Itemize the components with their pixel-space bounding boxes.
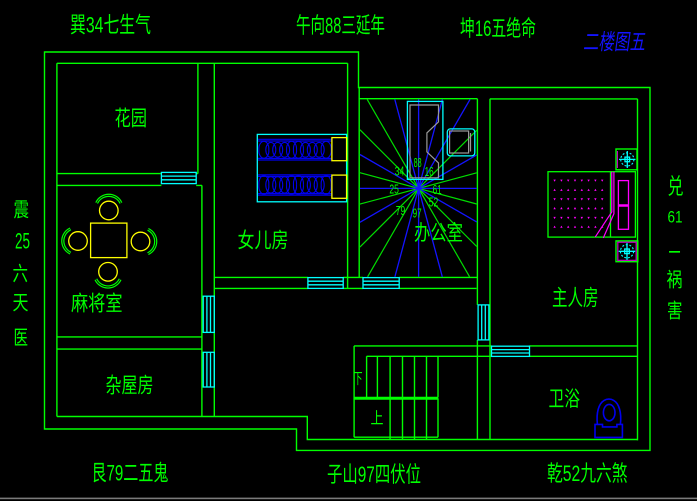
svg-text:花园: 花园 bbox=[115, 108, 148, 131]
svg-text:艮79二五鬼: 艮79二五鬼 bbox=[92, 461, 169, 486]
svg-text:麻将室: 麻将室 bbox=[71, 293, 123, 316]
svg-text:兑: 兑 bbox=[668, 174, 684, 199]
svg-text:25: 25 bbox=[15, 229, 30, 254]
svg-text:坤16五绝命: 坤16五绝命 bbox=[460, 16, 536, 41]
svg-text:卫浴: 卫浴 bbox=[549, 388, 581, 411]
svg-text:34: 34 bbox=[395, 163, 405, 178]
svg-text:97: 97 bbox=[413, 205, 422, 220]
svg-text:上: 上 bbox=[371, 410, 384, 428]
svg-text:办公室: 办公室 bbox=[414, 222, 463, 245]
svg-text:下: 下 bbox=[354, 371, 363, 388]
svg-text:害: 害 bbox=[667, 300, 683, 323]
svg-text:杂屋房: 杂屋房 bbox=[106, 375, 154, 398]
svg-text:午向88三延年: 午向88三延年 bbox=[296, 13, 385, 38]
svg-text:子山97四伏位: 子山97四伏位 bbox=[327, 462, 421, 487]
svg-text:88: 88 bbox=[414, 155, 422, 170]
svg-text:天: 天 bbox=[13, 293, 29, 315]
svg-text:乾52九六煞: 乾52九六煞 bbox=[547, 461, 628, 486]
svg-text:79: 79 bbox=[396, 203, 406, 218]
svg-text:祸: 祸 bbox=[667, 269, 683, 292]
svg-text:女儿房: 女儿房 bbox=[238, 230, 289, 253]
svg-text:16: 16 bbox=[425, 164, 434, 179]
svg-text:25: 25 bbox=[389, 181, 399, 196]
svg-text:一: 一 bbox=[669, 243, 681, 265]
svg-text:主人房: 主人房 bbox=[552, 286, 599, 311]
svg-text:医: 医 bbox=[14, 328, 29, 350]
svg-text:61: 61 bbox=[668, 208, 683, 227]
svg-text:震: 震 bbox=[14, 200, 30, 222]
svg-text:52: 52 bbox=[429, 195, 439, 210]
svg-text:二楼图五: 二楼图五 bbox=[582, 30, 647, 55]
svg-text:巽34七生气: 巽34七生气 bbox=[70, 13, 151, 38]
svg-text:六: 六 bbox=[13, 263, 29, 286]
